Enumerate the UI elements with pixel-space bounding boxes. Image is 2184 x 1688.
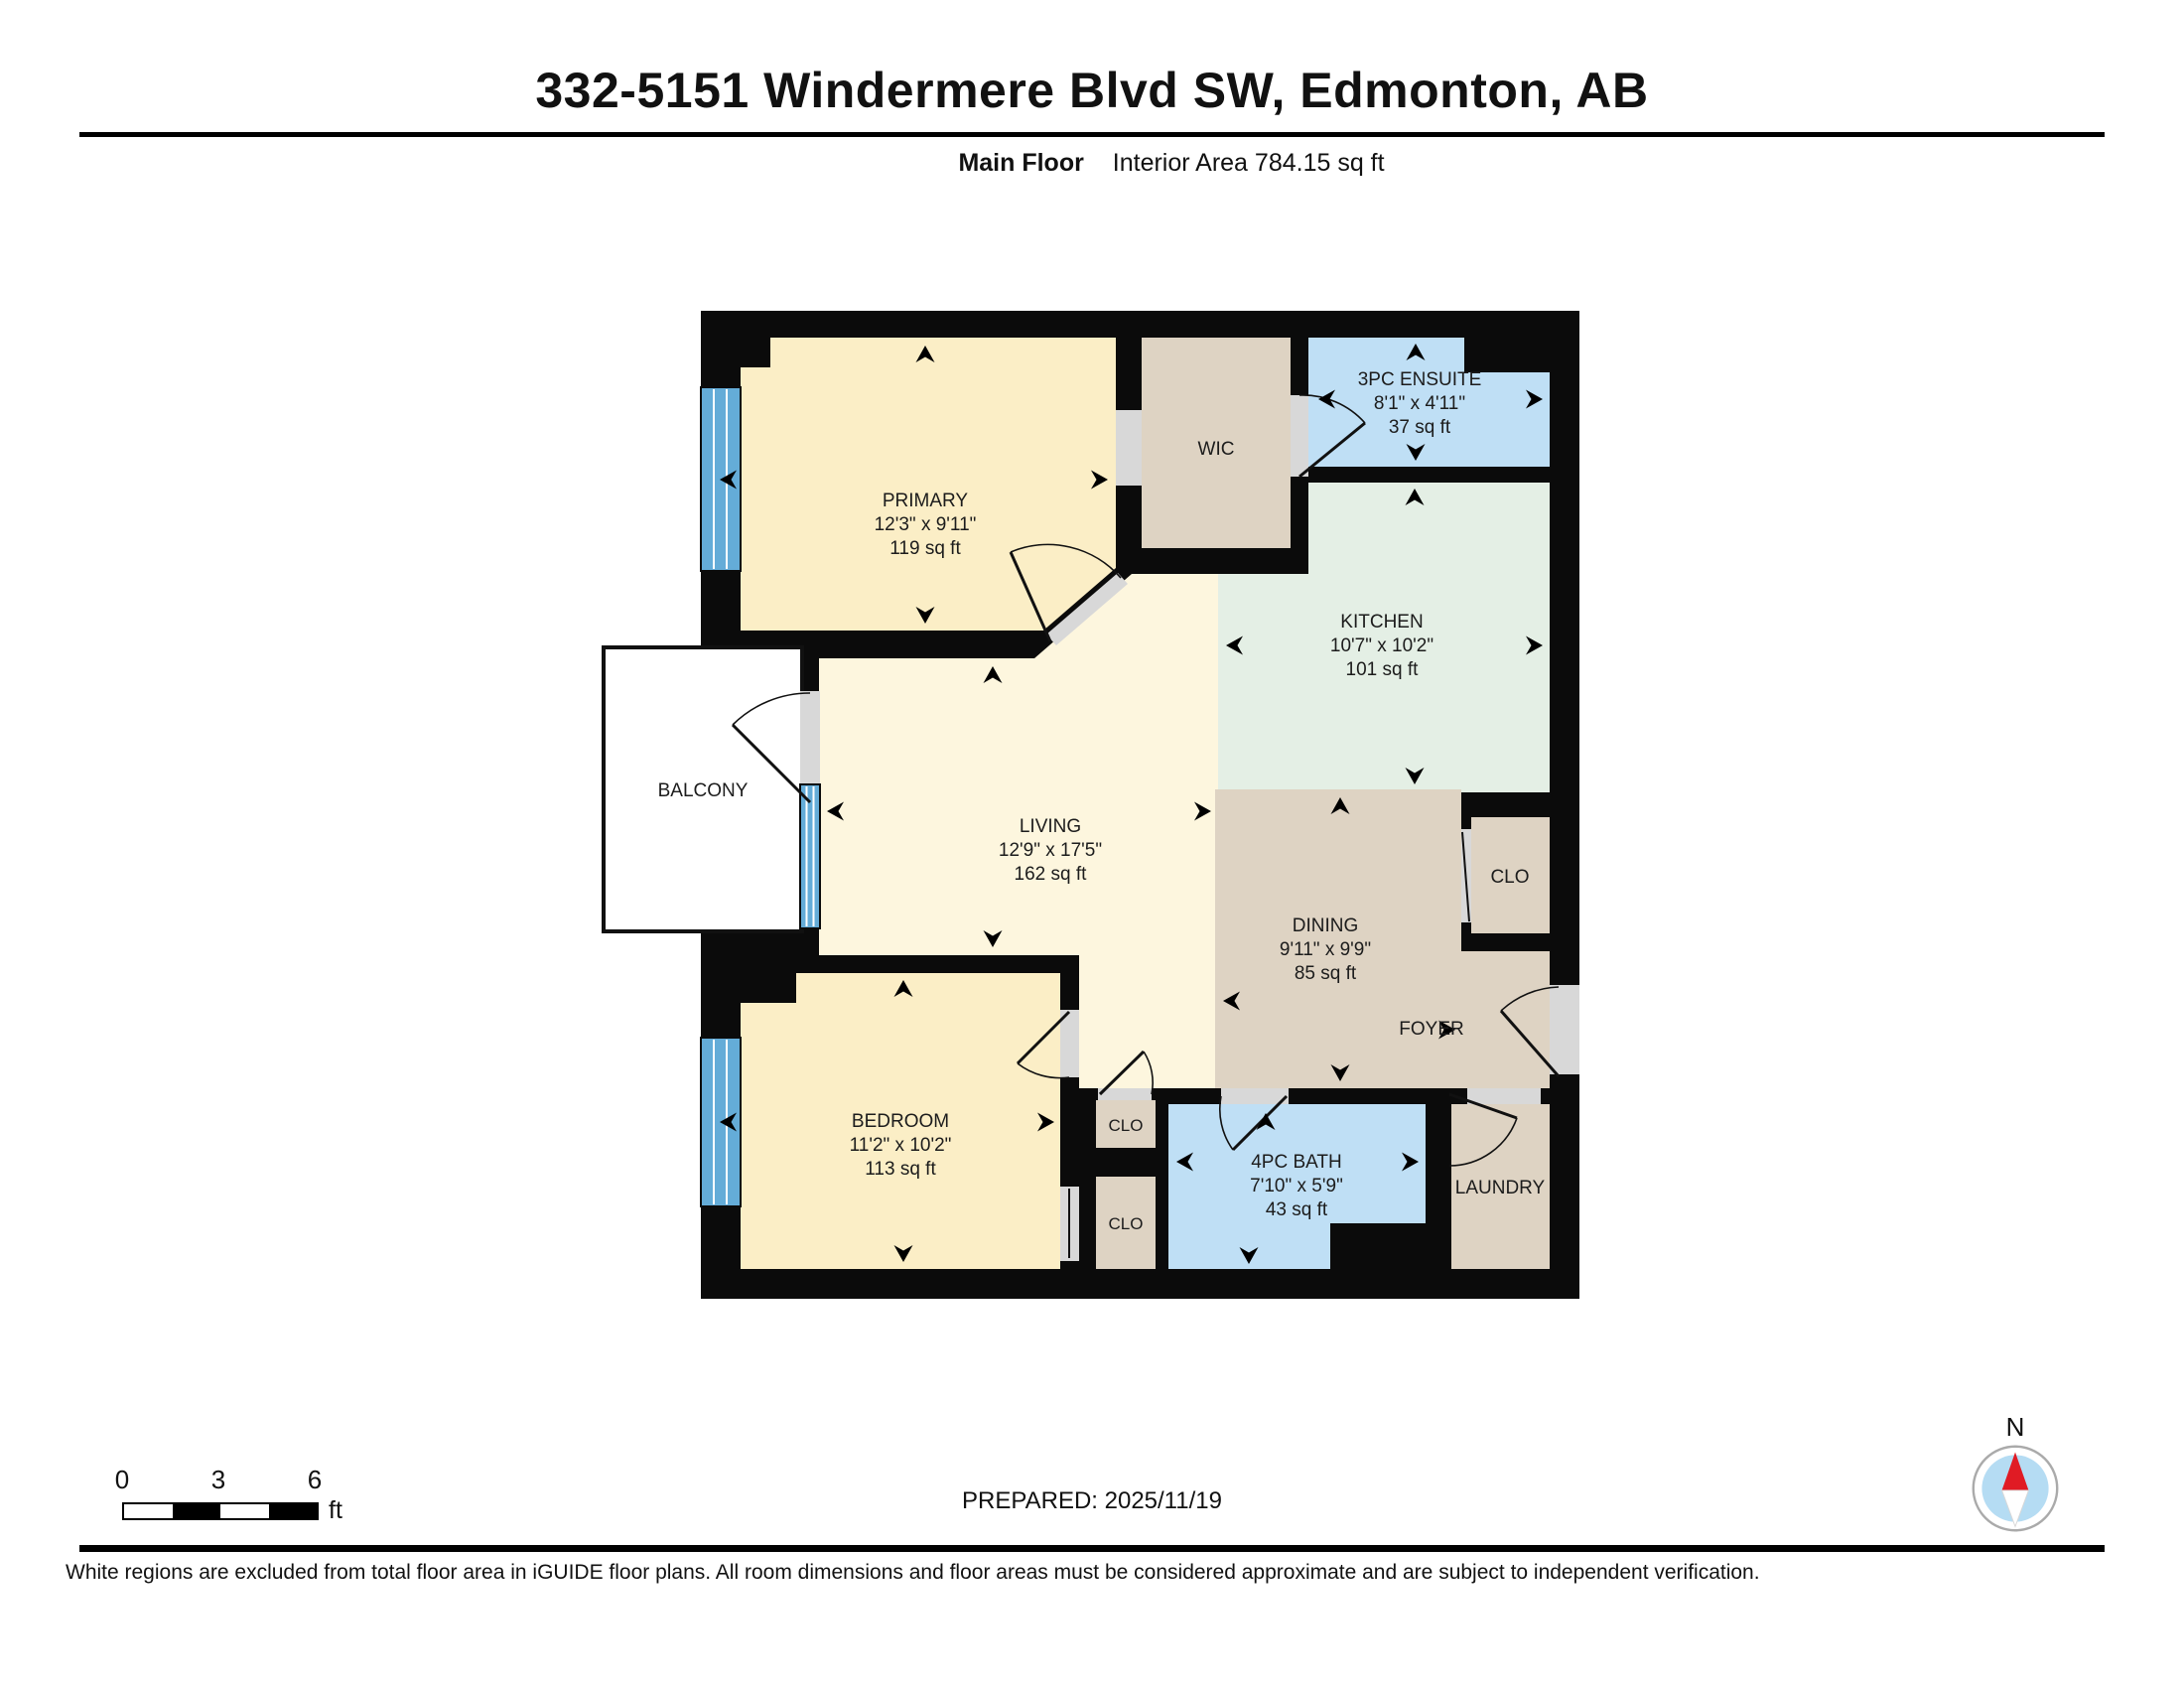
footer-divider bbox=[79, 1545, 2105, 1552]
room-kitchen-name: KITCHEN bbox=[1340, 612, 1423, 633]
room-living-area: 162 sq ft bbox=[1015, 864, 1088, 885]
room-primary-name: PRIMARY bbox=[883, 491, 969, 511]
compass: N bbox=[1964, 1413, 2067, 1548]
room-closet-lower-name: CLO bbox=[1109, 1214, 1144, 1233]
room-bath-dims: 7'10" x 5'9" bbox=[1250, 1176, 1343, 1196]
interior-area-label: Interior Area 784.15 sq ft bbox=[1113, 149, 1385, 177]
room-bedroom-area: 113 sq ft bbox=[865, 1159, 936, 1180]
floor-plan-page: 332-5151 Windermere Blvd SW, Edmonton, A… bbox=[0, 0, 2184, 1688]
room-primary-area: 119 sq ft bbox=[889, 538, 961, 559]
window-living-balcony bbox=[800, 784, 820, 928]
compass-icon bbox=[1968, 1441, 2063, 1536]
opening-wic-ensuite bbox=[1291, 395, 1308, 477]
room-balcony-name: BALCONY bbox=[658, 780, 749, 801]
floor-label: Main Floor bbox=[958, 149, 1083, 177]
opening-entry-door bbox=[1550, 985, 1579, 1074]
room-laundry-name: LAUNDRY bbox=[1455, 1178, 1546, 1198]
room-ensuite-name: 3PC ENSUITE bbox=[1358, 369, 1482, 390]
room-living-dims: 12'9" x 17'5" bbox=[999, 840, 1102, 861]
title-divider bbox=[79, 132, 2105, 137]
room-ensuite-dims: 8'1" x 4'11" bbox=[1374, 393, 1465, 414]
opening-laundry-door bbox=[1467, 1088, 1541, 1104]
room-ensuite-area: 37 sq ft bbox=[1389, 417, 1451, 438]
wall-notch bbox=[741, 338, 770, 367]
room-foyer-fill bbox=[1461, 951, 1550, 1088]
room-bath-area: 43 sq ft bbox=[1266, 1199, 1328, 1220]
room-kitchen-area: 101 sq ft bbox=[1346, 659, 1420, 680]
room-dining-name: DINING bbox=[1293, 915, 1359, 936]
room-kitchen-dims: 10'7" x 10'2" bbox=[1330, 635, 1433, 656]
room-wic-name: WIC bbox=[1198, 439, 1235, 460]
disclaimer-text: White regions are excluded from total fl… bbox=[66, 1561, 2111, 1585]
room-bedroom-dims: 11'2" x 10'2" bbox=[850, 1135, 952, 1156]
room-primary-dims: 12'3" x 9'11" bbox=[875, 514, 977, 535]
floor-plan-svg: PRIMARY 12'3" x 9'11" 119 sq ft WIC 3PC … bbox=[576, 288, 1608, 1360]
opening-bath-door bbox=[1221, 1088, 1289, 1104]
floor-subtitle: Main Floor Interior Area 784.15 sq ft bbox=[79, 149, 2184, 178]
room-bedroom-name: BEDROOM bbox=[852, 1111, 949, 1132]
room-foyer-name: FOYER bbox=[1399, 1019, 1463, 1040]
wall-notch bbox=[741, 973, 796, 1003]
page-title: 332-5151 Windermere Blvd SW, Edmonton, A… bbox=[0, 62, 2184, 119]
opening-primary-wic bbox=[1116, 410, 1142, 486]
prepared-date: PREPARED: 2025/11/19 bbox=[0, 1487, 2184, 1515]
room-bath-name: 4PC BATH bbox=[1251, 1152, 1342, 1173]
room-dining-closet-name: CLO bbox=[1490, 867, 1529, 888]
room-dining-area: 85 sq ft bbox=[1295, 963, 1357, 984]
room-dining-dims: 9'11" x 9'9" bbox=[1280, 939, 1371, 960]
room-closet-upper-name: CLO bbox=[1109, 1116, 1144, 1135]
compass-north-label: N bbox=[1964, 1413, 2067, 1441]
room-living-name: LIVING bbox=[1020, 816, 1081, 837]
room-primary-fill bbox=[741, 338, 1116, 631]
